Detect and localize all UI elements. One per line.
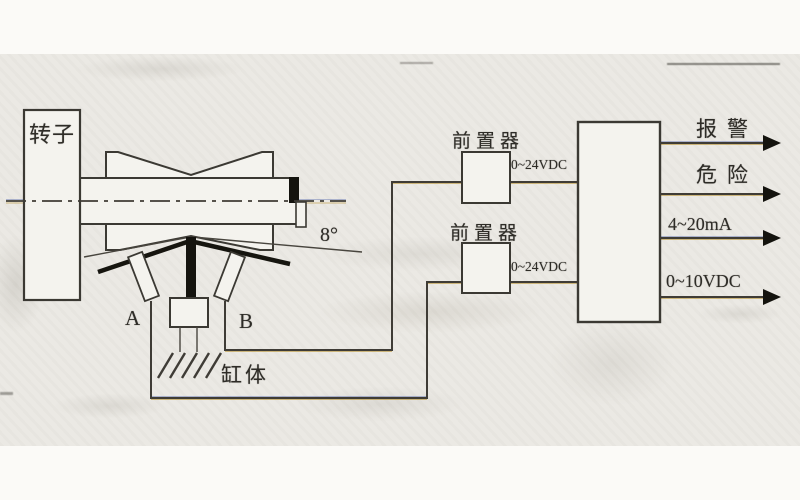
preamp1-box bbox=[462, 152, 510, 203]
probe-b-label: B bbox=[239, 309, 253, 334]
probe-b bbox=[214, 252, 245, 301]
output-label-alarm: 报警 bbox=[696, 113, 758, 143]
preamp1-label: 前置器 bbox=[452, 126, 524, 153]
probe-base-box bbox=[170, 298, 208, 327]
probe-a-label: A bbox=[125, 306, 140, 331]
preamp2-label: 前置器 bbox=[450, 218, 522, 245]
preamp2-box bbox=[462, 243, 510, 293]
monitor-box bbox=[578, 122, 660, 322]
output-arrow-icon bbox=[763, 135, 781, 151]
thrust-collar-upper bbox=[106, 152, 273, 178]
rotor-label: 转子 bbox=[29, 117, 75, 149]
output-arrow-icon bbox=[763, 186, 781, 202]
cylinder-label: 缸体 bbox=[221, 359, 269, 389]
shaft-end-mark bbox=[289, 177, 299, 203]
output-label-voltage: 0~10VDC bbox=[666, 271, 741, 292]
preamp2-supply-label: 0~24VDC bbox=[511, 259, 567, 275]
probe-a bbox=[128, 252, 159, 301]
output-arrow-icon bbox=[763, 289, 781, 305]
taper-angle-label: 8° bbox=[320, 224, 338, 247]
scanned-diagram-page: 转子 A B 缸体 8° 前置器 0~24VDC 前置器 0~24VDC 报警 … bbox=[0, 0, 800, 500]
cylinder-hatch bbox=[158, 353, 221, 378]
shaft-step bbox=[296, 202, 306, 227]
output-label-danger: 危险 bbox=[696, 159, 758, 189]
preamp1-supply-label: 0~24VDC bbox=[511, 157, 567, 173]
axial-probe bbox=[186, 237, 196, 299]
output-label-current: 4~20mA bbox=[668, 214, 732, 235]
output-arrow-icon bbox=[763, 230, 781, 246]
diagram-line-art bbox=[0, 0, 800, 500]
